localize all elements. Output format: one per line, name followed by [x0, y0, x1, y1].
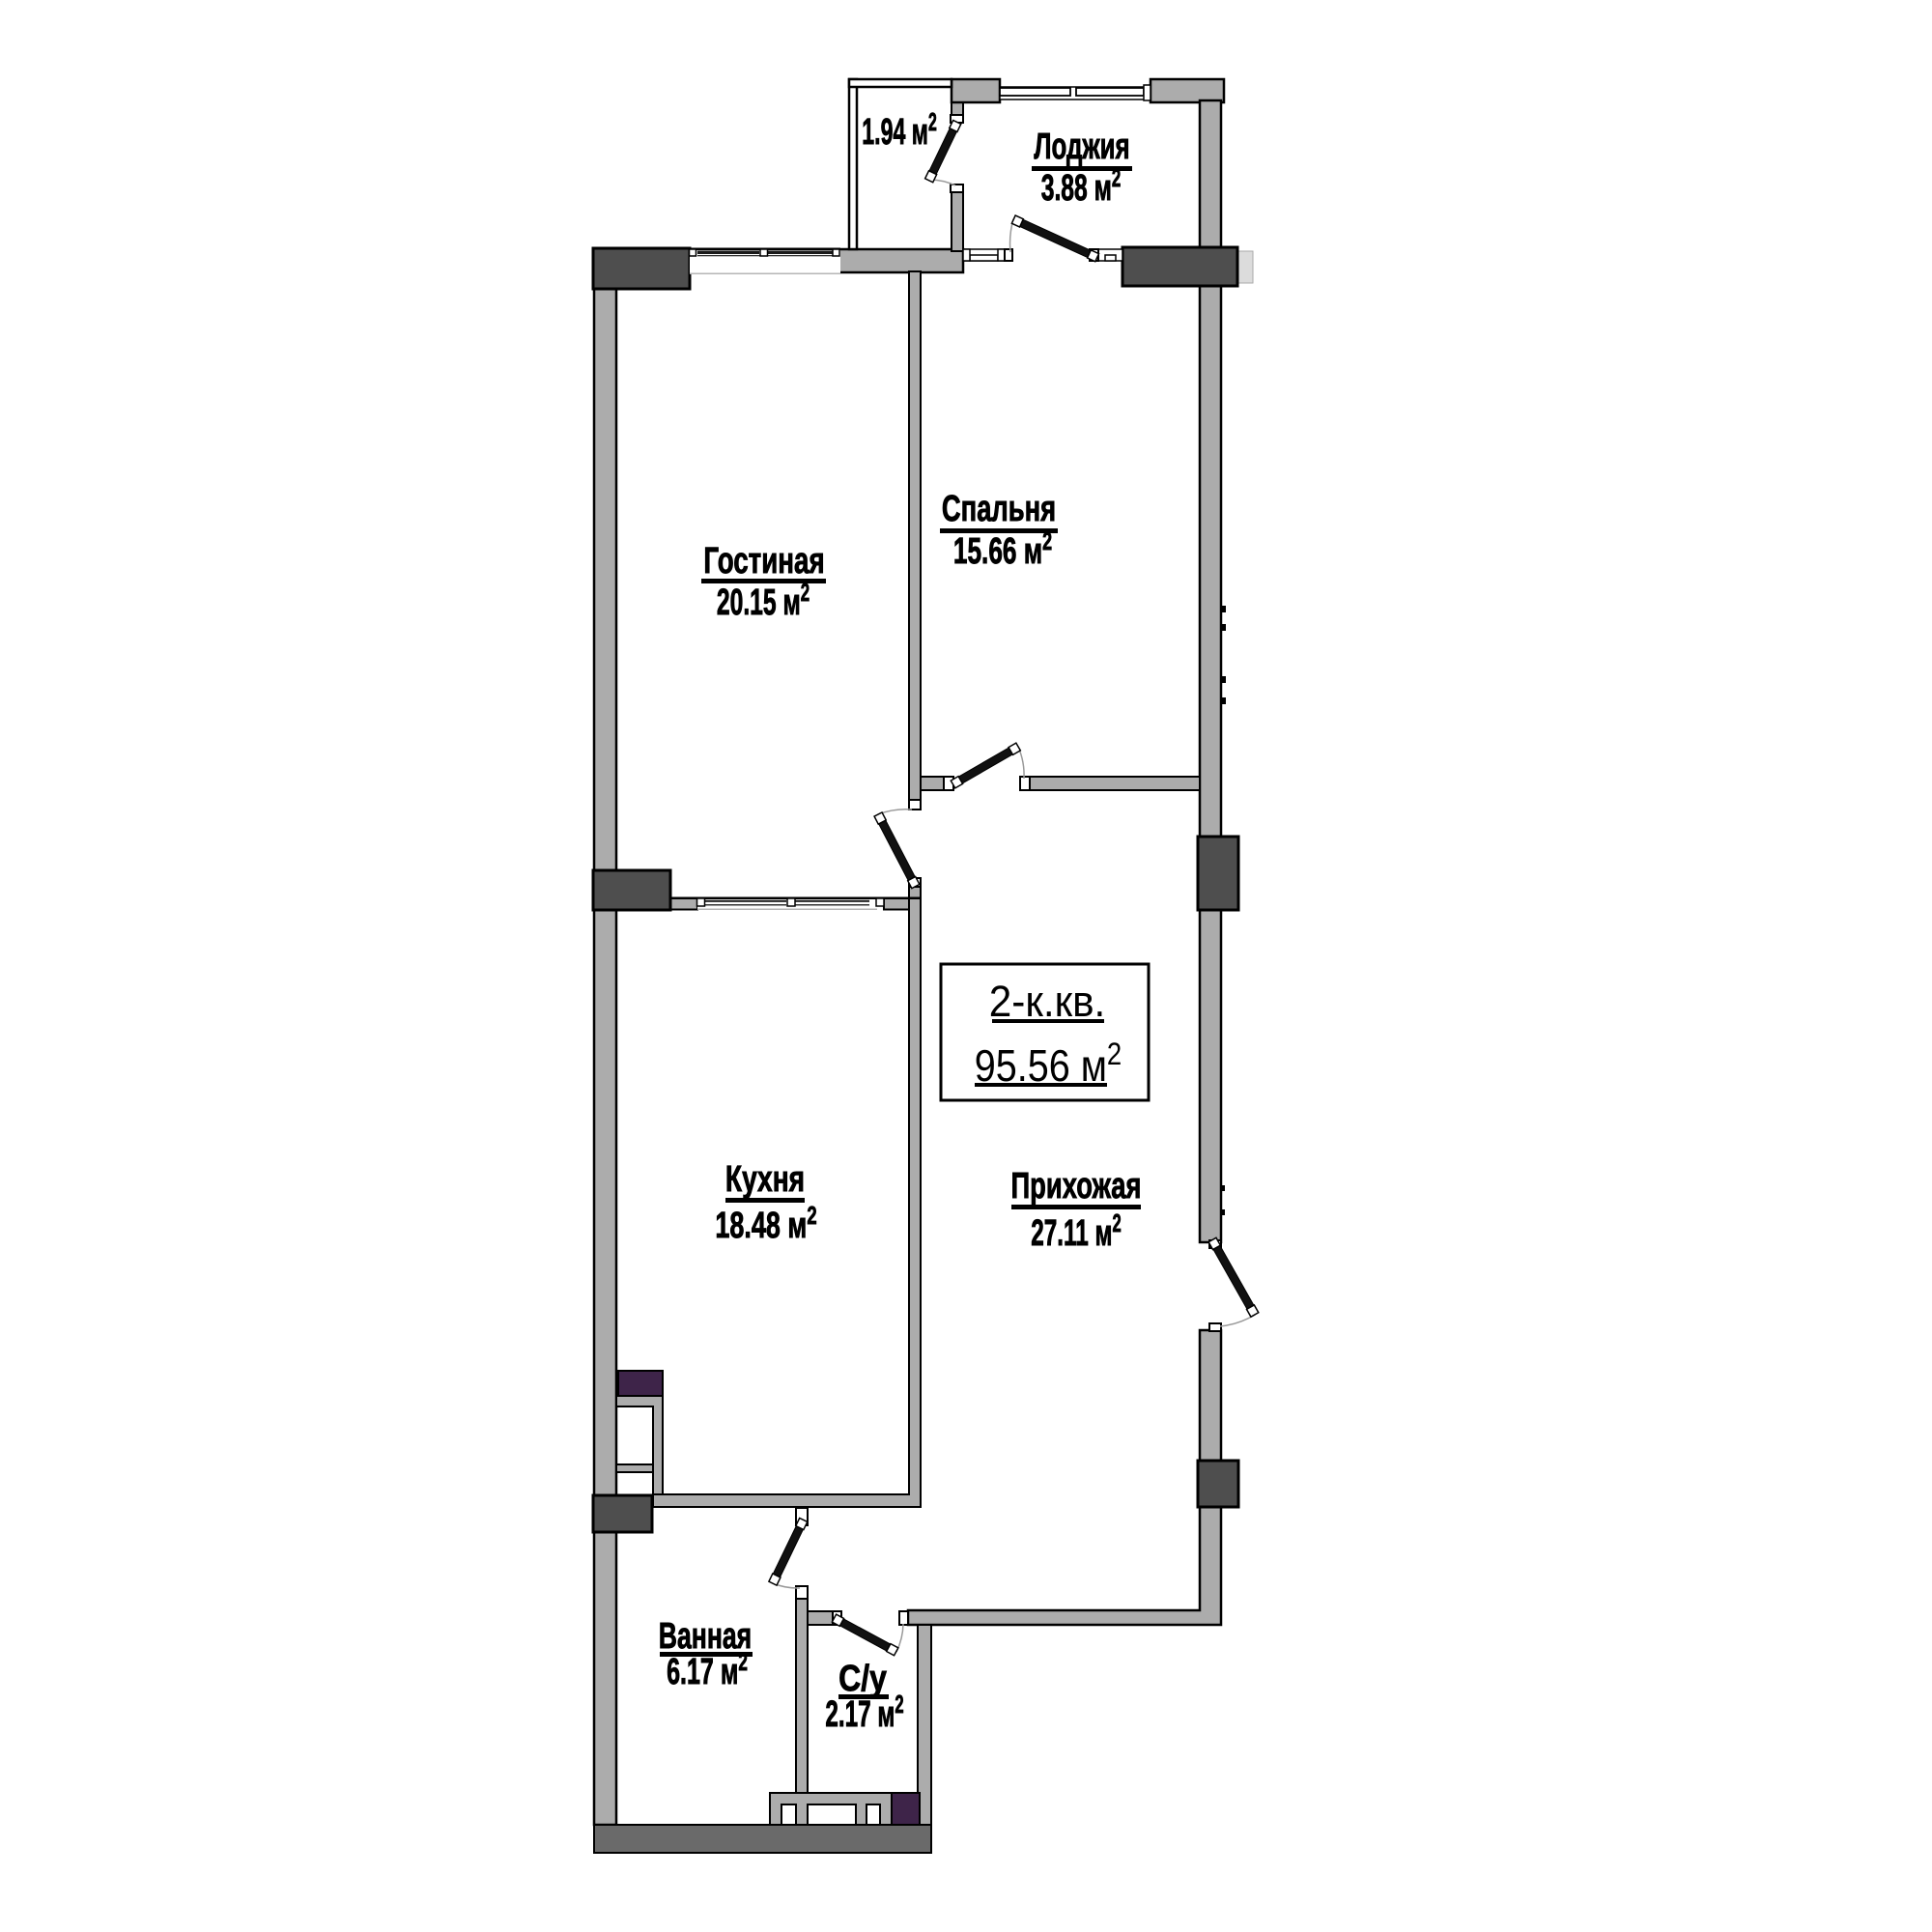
- svg-text:3.88 м2: 3.88 м2: [1041, 163, 1122, 208]
- svg-text:Гостиная: Гостиная: [703, 541, 824, 582]
- svg-text:Кухня: Кухня: [725, 1159, 805, 1200]
- svg-text:18.48 м2: 18.48 м2: [715, 1202, 816, 1245]
- svg-text:27.11 м2: 27.11 м2: [1031, 1208, 1121, 1253]
- svg-text:Прихожая: Прихожая: [1010, 1166, 1141, 1207]
- svg-text:2.17 м2: 2.17 м2: [825, 1690, 903, 1734]
- svg-text:20.15 м2: 20.15 м2: [717, 578, 810, 622]
- svg-text:1.94 м2: 1.94 м2: [862, 108, 937, 152]
- svg-text:2-к.кв.: 2-к.кв.: [989, 978, 1106, 1026]
- svg-text:15.66 м2: 15.66 м2: [953, 527, 1052, 571]
- svg-text:6.17 м2: 6.17 м2: [667, 1647, 748, 1691]
- svg-text:Спальня: Спальня: [942, 489, 1056, 529]
- svg-text:Лоджия: Лоджия: [1034, 126, 1129, 166]
